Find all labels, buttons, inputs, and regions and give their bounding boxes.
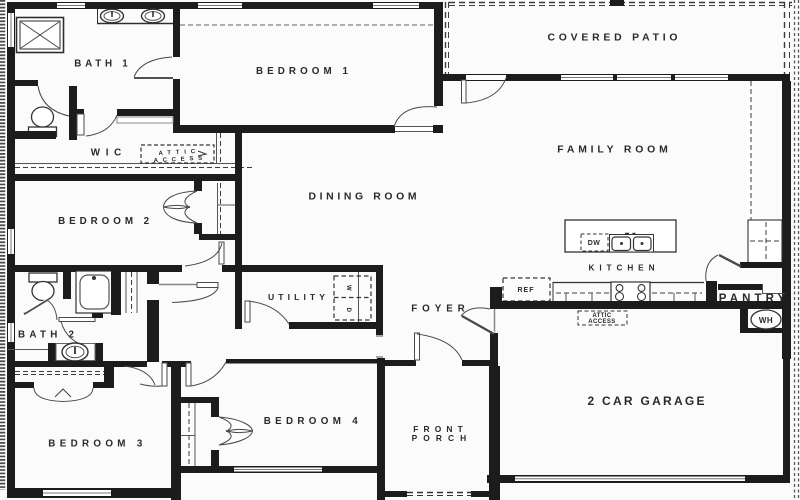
svg-text:DW: DW bbox=[588, 240, 600, 247]
svg-text:W: W bbox=[345, 285, 351, 291]
svg-text:ACCESS: ACCESS bbox=[588, 319, 615, 325]
svg-text:WH: WH bbox=[759, 316, 773, 325]
svg-text:REF: REF bbox=[518, 287, 535, 294]
svg-text:2 CAR GARAGE: 2 CAR GARAGE bbox=[588, 394, 705, 408]
svg-text:WIC: WIC bbox=[91, 147, 122, 158]
svg-text:FAMILY ROOM: FAMILY ROOM bbox=[557, 145, 668, 156]
svg-text:D: D bbox=[345, 308, 351, 313]
